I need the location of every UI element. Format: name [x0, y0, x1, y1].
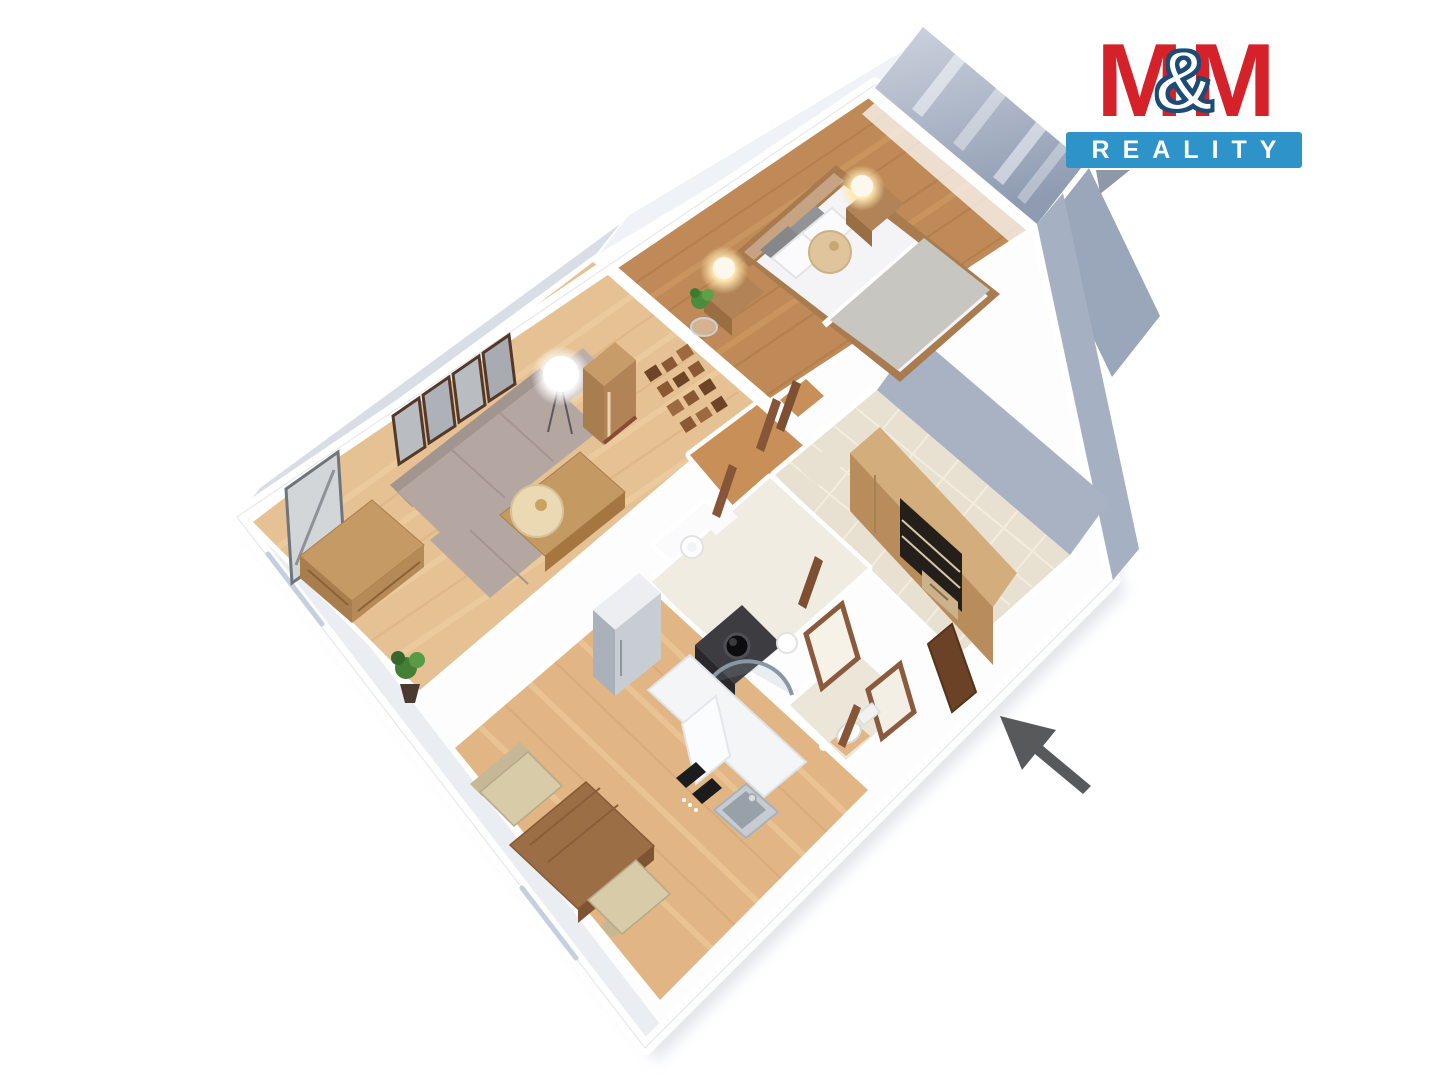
vessel-sink [725, 634, 749, 658]
pouf [511, 485, 563, 537]
closet-lamp-center [687, 542, 697, 552]
kitchen-floor-lamp-dot [819, 741, 829, 751]
logo-mm-wordmark: M & M [1058, 34, 1310, 128]
round-cushion-button [829, 241, 839, 251]
entrance-arrow [1000, 716, 1091, 794]
faucet [748, 794, 756, 802]
mm-reality-logo: M & M REALITY [1058, 34, 1310, 168]
logo-reality-bar: REALITY [1066, 132, 1302, 168]
logo-ampersand: & [1153, 34, 1215, 128]
pouf-button [535, 499, 547, 511]
screenshot-canvas: M & M REALITY [0, 0, 1440, 1080]
round-cushion [809, 231, 851, 273]
bathroom-ceiling-lamp [777, 633, 797, 653]
